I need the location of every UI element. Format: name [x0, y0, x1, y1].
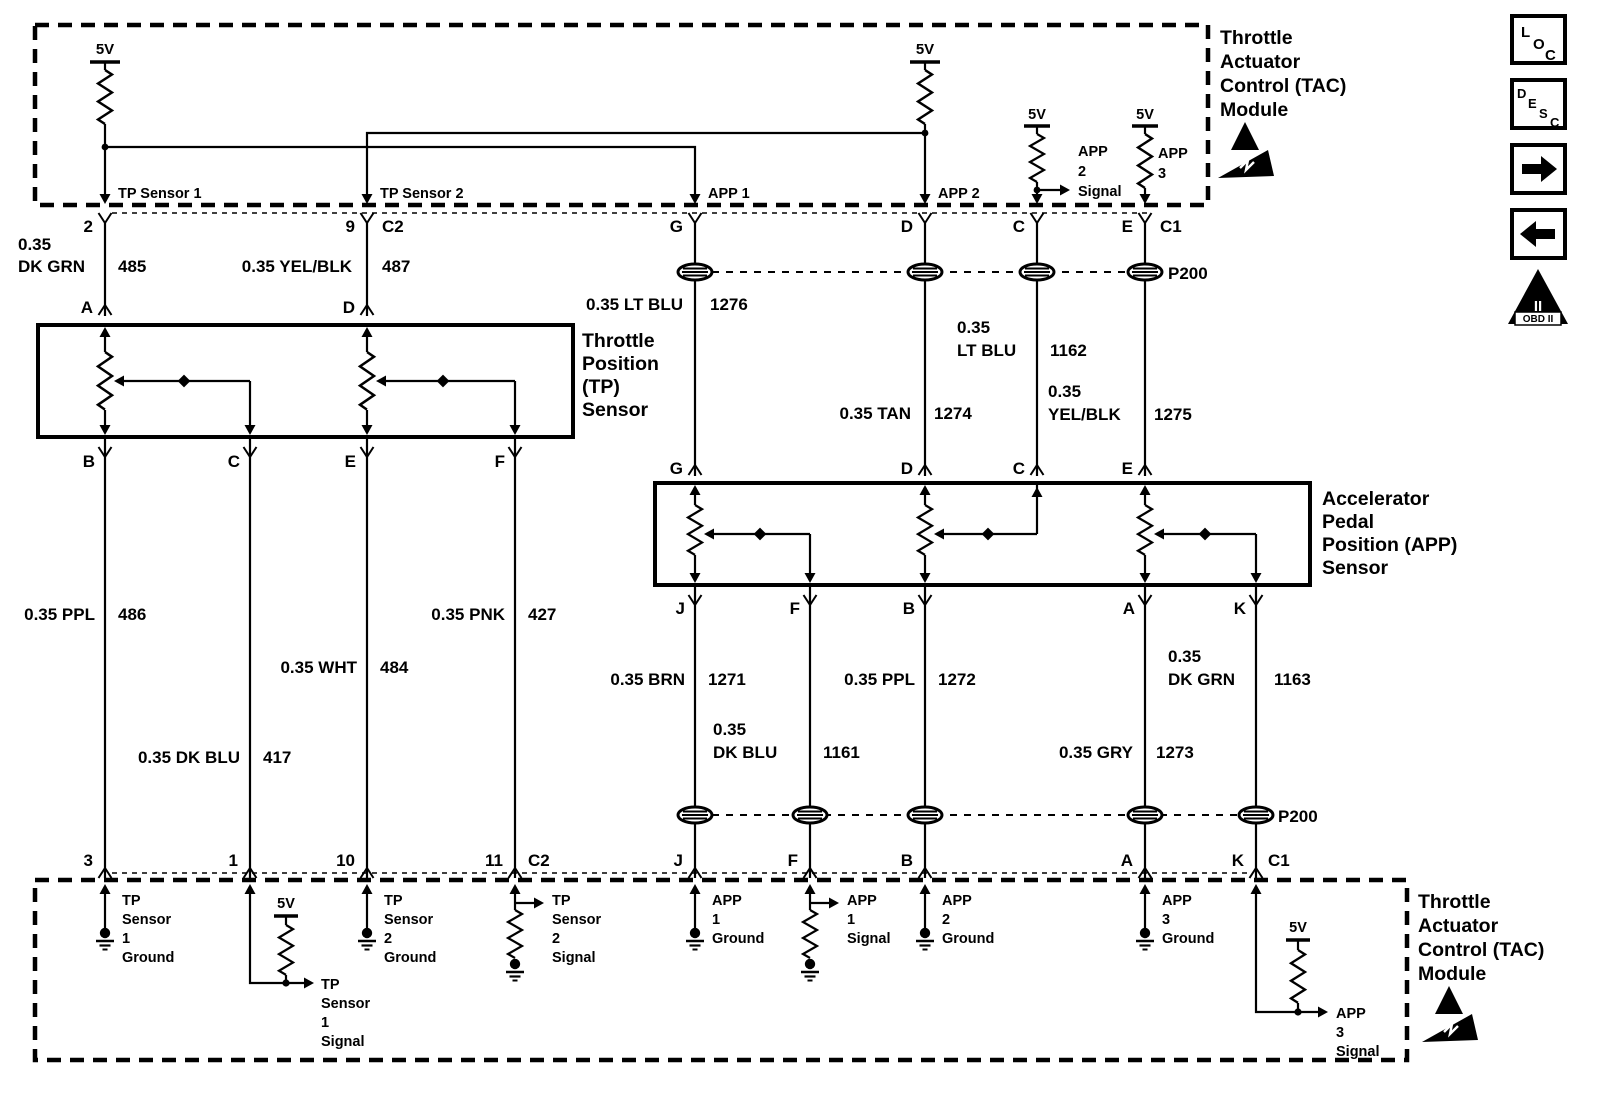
- inline-connector-icon: [1020, 264, 1054, 280]
- app3-label: 3: [1158, 166, 1166, 182]
- signal-label: 3: [1336, 1025, 1344, 1041]
- voltage-label: 5V: [1136, 107, 1154, 123]
- wire-484: 0.35 WHT 484: [280, 437, 408, 878]
- app-sensor-label: Accelerator: [1322, 488, 1430, 510]
- wire-color: 0.35: [713, 720, 746, 739]
- module-label: Control (TAC): [1418, 939, 1544, 961]
- wire-color: 0.35 LT BLU: [586, 295, 683, 314]
- app2-signal-label: Signal: [1078, 184, 1122, 200]
- pin-9: 9: [346, 217, 355, 236]
- tac-tp-app-schematic: 5V 5V 5V APP 2 Signal 5V: [0, 0, 1600, 1100]
- resistor: [508, 910, 522, 958]
- wire-circuit: 1163: [1274, 670, 1311, 689]
- signal-label: TP: [384, 893, 403, 909]
- wire-circuit: 486: [118, 605, 146, 624]
- pin-b: B: [901, 851, 913, 870]
- tp-sensor-label: Sensor: [582, 399, 649, 421]
- wire-color: 0.35: [1168, 647, 1201, 666]
- ground-icon: [686, 928, 704, 950]
- ground-icon: [916, 928, 934, 950]
- p200-label: P200: [1278, 807, 1318, 826]
- signal-label: 2: [942, 912, 950, 928]
- p200-connector-row-2: P200: [678, 807, 1318, 826]
- pin-c: C: [228, 452, 240, 471]
- wire-circuit: 1272: [938, 670, 976, 689]
- wire-color: DK GRN: [1168, 670, 1235, 689]
- wire-circuit: 485: [118, 257, 146, 276]
- tp1-potentiometer: [98, 327, 256, 435]
- ground-icon: [506, 959, 524, 981]
- connector-c1: C1: [1268, 851, 1290, 870]
- signal-label: Ground: [1162, 931, 1214, 947]
- module-label: Throttle: [1418, 891, 1491, 913]
- app1-ground-circuit: APP 1 Ground: [686, 884, 764, 950]
- top-module-callout: Throttle Actuator Control (TAC) Module: [1218, 27, 1346, 178]
- inline-connector-icon: [1128, 807, 1162, 823]
- app1-signal-circuit: APP 1 Signal: [801, 884, 891, 981]
- app3-5v-pullup: 5V APP 3: [1132, 107, 1188, 204]
- tp-sensor-label: Throttle: [582, 330, 655, 352]
- wire-color: DK BLU: [713, 743, 777, 762]
- pin-d: D: [901, 217, 913, 236]
- signal-arrow-icon: [1060, 185, 1070, 196]
- app3-ground-circuit: APP 3 Ground: [1136, 884, 1214, 950]
- wire-487: 0.35 YEL/BLK 487 D: [242, 223, 411, 317]
- pin-d: D: [343, 298, 355, 317]
- signal-label: APP: [712, 893, 742, 909]
- signal-label: APP: [1336, 1006, 1366, 1022]
- app1-potentiometer: [688, 485, 816, 583]
- inline-connector-icon: [793, 807, 827, 823]
- app2-signal-label: APP: [1078, 144, 1108, 160]
- pin-a: A: [1121, 851, 1133, 870]
- app-box-lower-pins: J F B A K: [676, 595, 1263, 618]
- signal-label: 2: [384, 931, 392, 947]
- voltage-label: 5V: [916, 41, 934, 58]
- pin-k: K: [1234, 599, 1247, 618]
- resistor: [803, 910, 817, 958]
- wire-1162: 0.35 LT BLU 1162: [957, 223, 1087, 476]
- wire-color: 0.35 BRN: [610, 670, 685, 689]
- wire-color: 0.35 GRY: [1059, 743, 1134, 762]
- esd-sensitive-icon: [1422, 986, 1478, 1042]
- ground-icon: [801, 959, 819, 981]
- pin-j: J: [676, 599, 685, 618]
- p200-connector-row-1: P200: [678, 264, 1208, 283]
- connector-c2: C2: [382, 217, 404, 236]
- inline-connector-icon: [908, 264, 942, 280]
- p200-label: P200: [1168, 264, 1208, 283]
- app2-signal-label: 2: [1078, 164, 1086, 180]
- pin-2: 2: [84, 217, 93, 236]
- app2-output-label: APP 2: [938, 186, 980, 202]
- module-label: Actuator: [1220, 51, 1301, 73]
- pin-10: 10: [336, 851, 355, 870]
- app3-label: APP: [1158, 146, 1188, 162]
- wire-color: 0.35 WHT: [280, 658, 357, 677]
- wire-circuit: 484: [380, 658, 409, 677]
- signal-label: 1: [321, 1015, 329, 1031]
- app3-potentiometer: [1138, 485, 1262, 583]
- signal-label: Signal: [321, 1034, 365, 1050]
- signal-label: 1: [847, 912, 855, 928]
- signal-label: APP: [942, 893, 972, 909]
- desc-letter: D: [1517, 86, 1526, 101]
- signal-label: 1: [122, 931, 130, 947]
- signal-label: Sensor: [321, 996, 371, 1012]
- wire-circuit: 487: [382, 257, 410, 276]
- signal-arrow-icon: [534, 898, 544, 909]
- esd-sensitive-icon: [1218, 122, 1274, 178]
- tp2-potentiometer: [360, 327, 521, 435]
- pin-g: G: [670, 217, 683, 236]
- wire-485: 0.35 DK GRN 485 A: [18, 223, 146, 317]
- signal-label: APP: [1162, 893, 1192, 909]
- wire-417: 0.35 DK BLU 417: [138, 437, 291, 878]
- wire-circuit: 1271: [708, 670, 746, 689]
- app-box-upper-pins: G D C E: [670, 459, 1133, 478]
- wire-circuit: 1276: [710, 295, 748, 314]
- pin-c: C: [1013, 459, 1025, 478]
- signal-label: Sensor: [552, 912, 602, 928]
- resistor: [1138, 134, 1152, 188]
- loc-letter: O: [1533, 36, 1545, 53]
- obd2-icon-button[interactable]: II OBD II: [1508, 269, 1568, 325]
- signal-label: TP: [122, 893, 141, 909]
- bottom-module-callout: Throttle Actuator Control (TAC) Module: [1418, 891, 1544, 1042]
- wire-1163: 0.35 DK GRN 1163: [1168, 585, 1311, 878]
- pin-e: E: [1122, 459, 1133, 478]
- ground-icon: [96, 928, 114, 950]
- wire-circuit: 1273: [1156, 743, 1194, 762]
- pin-1: 1: [229, 851, 238, 870]
- signal-label: 2: [552, 931, 560, 947]
- inline-connector-icon: [678, 807, 712, 823]
- voltage-label: 5V: [277, 896, 295, 912]
- voltage-label: 5V: [96, 41, 114, 58]
- wire-circuit: 1274: [934, 404, 972, 423]
- tp1-5v-supply: 5V: [90, 41, 701, 204]
- app2-5v-supply: 5V: [362, 41, 941, 204]
- resistor: [98, 70, 112, 124]
- signal-arrow-icon: [829, 898, 839, 909]
- obd2-banner: OBD II: [1523, 314, 1554, 325]
- module-label: Actuator: [1418, 915, 1499, 937]
- connector-c2: C2: [528, 851, 550, 870]
- ground-icon: [1136, 928, 1154, 950]
- pin-11: 11: [485, 851, 503, 870]
- wire-1161: 0.35 DK BLU 1161: [713, 585, 860, 878]
- pin-forks: [99, 213, 1152, 223]
- pin-j: J: [674, 851, 683, 870]
- signal-label: Ground: [942, 931, 994, 947]
- tp-box-lower-pins: B C E F: [83, 447, 522, 471]
- wire-circuit: 1161: [823, 743, 860, 762]
- signal-label: Sensor: [384, 912, 434, 928]
- wire-color: 0.35 PNK: [431, 605, 505, 624]
- desc-button[interactable]: D E S C: [1512, 80, 1565, 130]
- app2-signal-5v-pullup: 5V APP 2 Signal: [1024, 107, 1122, 204]
- pin-a: A: [1123, 599, 1135, 618]
- resistor: [918, 70, 932, 124]
- signal-label: TP: [321, 977, 340, 993]
- pin-f: F: [790, 599, 800, 618]
- pin-e: E: [345, 452, 356, 471]
- previous-page-button[interactable]: [1512, 210, 1565, 258]
- wiring-diagram-page: 5V 5V 5V APP 2 Signal 5V: [0, 0, 1600, 1100]
- app-sensor-label: Position (APP): [1322, 534, 1457, 556]
- tp2-output-label: TP Sensor 2: [380, 186, 464, 202]
- loc-letter: C: [1545, 47, 1556, 64]
- desc-letter: S: [1539, 106, 1548, 121]
- connector-c1: C1: [1160, 217, 1182, 236]
- signal-label: 3: [1162, 912, 1170, 928]
- pin-k: K: [1232, 851, 1245, 870]
- pin-c: C: [1013, 217, 1025, 236]
- ground-icon: [358, 928, 376, 950]
- wire-1273: 0.35 GRY 1273: [1059, 585, 1194, 878]
- app-sensor-label: Sensor: [1322, 557, 1389, 579]
- pin-e: E: [1122, 217, 1133, 236]
- signal-label: APP: [847, 893, 877, 909]
- wire-color: 0.35 TAN: [840, 404, 912, 423]
- pin-b: B: [903, 599, 915, 618]
- bottom-connector-row: 3 1 10 11 C2 J F B A K C1: [84, 851, 1290, 878]
- wire-circuit: 427: [528, 605, 556, 624]
- tp1-signal-circuit: 5V TP Sensor 1 Signal: [245, 884, 371, 1050]
- wire-color: 0.35 PPL: [844, 670, 915, 689]
- wire-color: 0.35 YEL/BLK: [242, 257, 353, 276]
- signal-label: Ground: [384, 950, 436, 966]
- wire-circuit: 417: [263, 748, 291, 767]
- tp1-ground-circuit: TP Sensor 1 Ground: [96, 884, 174, 966]
- wire-color: 0.35: [18, 235, 51, 254]
- signal-arrow-icon: [1318, 1007, 1328, 1018]
- inline-connector-icon: [908, 807, 942, 823]
- wire-color: 0.35 DK BLU: [138, 748, 240, 767]
- module-label: Module: [1418, 963, 1486, 985]
- pin-3: 3: [84, 851, 93, 870]
- wire-color: 0.35 PPL: [24, 605, 95, 624]
- signal-label: Signal: [847, 931, 891, 947]
- app2-ground-circuit: APP 2 Ground: [916, 884, 994, 950]
- tp1-output-label: TP Sensor 1: [118, 186, 202, 202]
- wire-486: 0.35 PPL 486: [24, 437, 146, 878]
- app2-potentiometer: [918, 483, 1043, 583]
- tp2-ground-circuit: TP Sensor 2 Ground: [358, 884, 436, 966]
- top-connector-row: 2 9 C2 G D C E C1: [84, 213, 1182, 236]
- wire-circuit: 1275: [1154, 405, 1192, 424]
- inline-connector-icon: [1239, 807, 1273, 823]
- wire-1274: 0.35 TAN 1274: [840, 223, 973, 476]
- wire-color: YEL/BLK: [1048, 405, 1121, 424]
- wire-color: 0.35: [957, 318, 990, 337]
- app3-signal-circuit: 5V APP 3 Signal: [1251, 884, 1380, 1060]
- pin-d: D: [901, 459, 913, 478]
- resistor: [1030, 134, 1044, 182]
- inline-connector-icon: [678, 264, 712, 280]
- loc-button[interactable]: L O C: [1512, 16, 1565, 64]
- signal-arrow-icon: [304, 978, 314, 989]
- resistor: [279, 925, 293, 975]
- pin-a: A: [81, 298, 93, 317]
- inline-connector-icon: [1128, 264, 1162, 280]
- desc-letter: C: [1550, 115, 1560, 130]
- wire-color: DK GRN: [18, 257, 85, 276]
- module-label: Control (TAC): [1220, 75, 1346, 97]
- wire-427: 0.35 PNK 427: [431, 437, 556, 878]
- module-label: Module: [1220, 99, 1288, 121]
- signal-label: Ground: [712, 931, 764, 947]
- signal-label: Sensor: [122, 912, 172, 928]
- wire-circuit: 1162: [1050, 341, 1087, 360]
- wire-1272: 0.35 PPL 1272: [844, 585, 976, 878]
- tp-sensor-label: (TP): [582, 376, 620, 398]
- wire-color: 0.35: [1048, 382, 1081, 401]
- pin-b: B: [83, 452, 95, 471]
- pin-f: F: [788, 851, 798, 870]
- desc-letter: E: [1528, 96, 1537, 111]
- resistor: [1291, 950, 1305, 1003]
- next-page-button[interactable]: [1512, 145, 1565, 193]
- voltage-label: 5V: [1289, 920, 1307, 936]
- tp-sensor-box: Throttle Position (TP) Sensor: [38, 325, 659, 437]
- wire-color: LT BLU: [957, 341, 1016, 360]
- tp-sensor-label: Position: [582, 353, 659, 375]
- app1-output-label: APP 1: [708, 186, 750, 202]
- tp2-signal-circuit: TP Sensor 2 Signal: [506, 884, 602, 981]
- voltage-label: 5V: [1028, 107, 1046, 123]
- signal-label: Signal: [1336, 1044, 1380, 1060]
- side-toolbar: L O C D E S C II OBD II: [1508, 16, 1568, 325]
- loc-letter: L: [1521, 24, 1530, 41]
- signal-label: 1: [712, 912, 720, 928]
- signal-label: Signal: [552, 950, 596, 966]
- pin-f: F: [495, 452, 505, 471]
- pin-g: G: [670, 459, 683, 478]
- signal-label: Ground: [122, 950, 174, 966]
- app-sensor-box: Accelerator Pedal Position (APP) Sensor: [655, 483, 1457, 585]
- module-label: Throttle: [1220, 27, 1293, 49]
- signal-label: TP: [552, 893, 571, 909]
- app-sensor-label: Pedal: [1322, 511, 1374, 533]
